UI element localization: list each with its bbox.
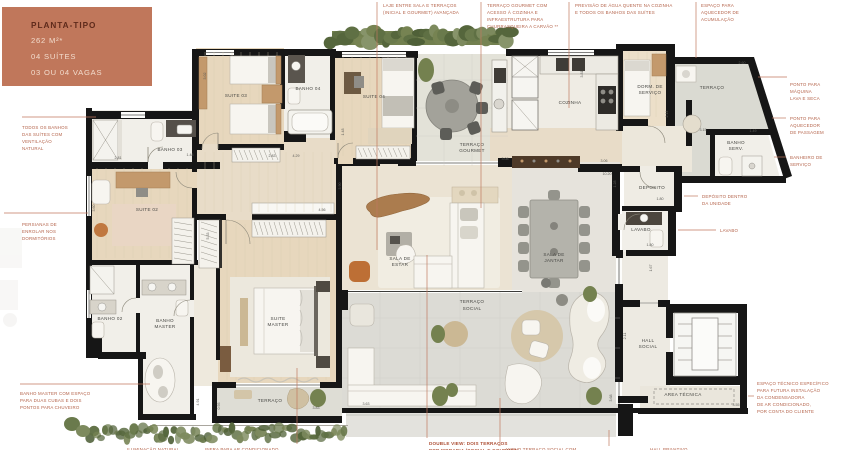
svg-text:3.55: 3.55 [733,403,740,407]
svg-text:JANTAR: JANTAR [544,258,564,263]
svg-text:3.63: 3.63 [363,402,370,406]
svg-text:DE PASSAGEM: DE PASSAGEM [790,130,824,135]
svg-text:VENTILAÇÃO: VENTILAÇÃO [22,139,52,144]
svg-text:1.28: 1.28 [613,181,617,188]
svg-text:PLANTA-TIPO: PLANTA-TIPO [31,21,96,30]
svg-text:ESPAÇO TÉCNICO ESPECÍFICO: ESPAÇO TÉCNICO ESPECÍFICO [757,381,829,386]
svg-text:MASTER: MASTER [155,324,176,329]
svg-text:CHURRASQUEIRA A CARVÃO **: CHURRASQUEIRA A CARVÃO ** [487,24,558,29]
svg-text:ENROLAR NOS: ENROLAR NOS [22,229,56,234]
svg-text:COZINHA: COZINHA [559,100,582,105]
svg-text:PONTOS PARA CHUVEIRO: PONTOS PARA CHUVEIRO [20,405,80,410]
svg-text:LAVA E SECA: LAVA E SECA [790,96,820,101]
svg-text:DE AR CONDICIONADO,: DE AR CONDICIONADO, [757,402,811,407]
svg-text:SUITE 03: SUITE 03 [225,93,247,98]
svg-text:TERRAÇO GOURMET COM: TERRAÇO GOURMET COM [487,3,547,8]
svg-text:3.81: 3.81 [580,71,584,78]
svg-text:AQUECEDOR DE: AQUECEDOR DE [701,10,739,15]
svg-text:BANHO: BANHO [727,140,745,145]
svg-text:SALA DE: SALA DE [543,252,564,257]
svg-text:MÁQUINA: MÁQUINA [790,89,812,94]
svg-text:BANHO 04: BANHO 04 [295,86,320,91]
svg-text:DORM. DE: DORM. DE [637,84,662,89]
svg-text:ACUMULAÇÃO: ACUMULAÇÃO [701,17,734,22]
svg-text:SERV.: SERV. [729,146,744,151]
svg-text:SERVIÇO: SERVIÇO [790,162,811,167]
svg-text:BANHO: BANHO [156,318,174,323]
svg-text:3.60: 3.60 [92,205,96,212]
svg-text:BANHO MASTER COM ESPAÇO: BANHO MASTER COM ESPAÇO [20,391,91,396]
svg-text:SERVIÇO: SERVIÇO [639,90,662,95]
svg-text:2.60: 2.60 [739,61,746,65]
svg-text:PARA FUTURA INSTALAÇÃO: PARA FUTURA INSTALAÇÃO [757,388,821,393]
svg-text:4.56: 4.56 [319,208,326,212]
svg-text:HALL: HALL [642,338,655,343]
svg-text:TERRAÇO: TERRAÇO [700,85,725,90]
svg-text:4.29: 4.29 [293,154,300,158]
svg-text:3.90: 3.90 [338,183,342,190]
svg-text:BANHO 02: BANHO 02 [97,316,122,321]
svg-text:4.91: 4.91 [196,399,200,406]
svg-text:PERSIANAS DE: PERSIANAS DE [22,222,57,227]
svg-text:1.80: 1.80 [647,243,654,247]
svg-text:INFRAESTRUTURA PARA: INFRAESTRUTURA PARA [487,17,543,22]
svg-text:1.48: 1.48 [341,129,345,136]
svg-text:262 M²*: 262 M²* [31,36,63,45]
svg-text:TERRAÇO: TERRAÇO [258,398,283,403]
svg-text:PONTO PARA: PONTO PARA [790,82,820,87]
svg-text:SALA DE: SALA DE [389,256,410,261]
svg-text:DEPÓSITO DENTRO: DEPÓSITO DENTRO [702,194,748,199]
svg-text:DORMITÓRIOS: DORMITÓRIOS [22,236,56,241]
svg-text:2.11: 2.11 [623,333,627,340]
svg-text:MASTER: MASTER [268,322,289,327]
svg-text:3.83: 3.83 [313,406,320,410]
svg-text:DA CONDENSADORA: DA CONDENSADORA [757,395,805,400]
svg-text:2.81: 2.81 [115,156,122,160]
svg-text:3.02: 3.02 [203,73,207,80]
svg-text:DA UNIDADE: DA UNIDADE [702,201,731,206]
svg-text:SOCIAL: SOCIAL [639,344,658,349]
svg-text:2.83: 2.83 [269,154,276,158]
svg-text:03 OU 04 VAGAS: 03 OU 04 VAGAS [31,68,102,77]
svg-text:POR CONTA DO CLIENTE: POR CONTA DO CLIENTE [757,409,814,414]
svg-text:(INICIAL E GOURMET) AVANÇADA: (INICIAL E GOURMET) AVANÇADA [383,10,459,15]
svg-text:0.93: 0.93 [217,403,221,410]
svg-text:ESTAR: ESTAR [392,262,409,267]
svg-text:SUITE: SUITE [270,316,285,321]
svg-text:2.14: 2.14 [665,111,669,118]
svg-text:BANHEIRO DE: BANHEIRO DE [790,155,822,160]
svg-text:ESPAÇO PARA: ESPAÇO PARA [701,3,734,8]
svg-text:DOUBLE VIEW: DOIS TERRAÇOS: DOUBLE VIEW: DOIS TERRAÇOS [429,441,508,446]
svg-text:AREA TÉCNICA: AREA TÉCNICA [664,391,702,397]
svg-text:LAVABO: LAVABO [720,228,739,233]
svg-text:3.15: 3.15 [700,128,707,132]
svg-text:TERRAÇO: TERRAÇO [460,299,485,304]
svg-text:AQUECEDOR: AQUECEDOR [790,123,820,128]
svg-text:1.67: 1.67 [649,265,653,272]
svg-text:1.48: 1.48 [187,153,194,157]
svg-text:LAVABO: LAVABO [631,227,651,232]
svg-text:PARA DUAS CUBAS E DOIS: PARA DUAS CUBAS E DOIS [20,398,82,403]
svg-text:ACESSO À COZINHA E: ACESSO À COZINHA E [487,10,538,15]
svg-text:5.33: 5.33 [206,233,210,240]
svg-text:PONTO PARA: PONTO PARA [790,116,820,121]
svg-text:SUITE 04: SUITE 04 [363,94,385,99]
svg-text:PREVISÃO DE ÁGUA QUENTE NA COZ: PREVISÃO DE ÁGUA QUENTE NA COZINHA [575,3,673,8]
svg-text:SOCIAL: SOCIAL [463,306,482,311]
svg-text:3.06: 3.06 [601,159,608,163]
svg-text:DAS SUÍTES COM: DAS SUÍTES COM [22,132,63,137]
svg-text:3.68: 3.68 [609,395,613,402]
svg-text:04 SUÍTES: 04 SUÍTES [31,52,76,61]
svg-text:NATURAL: NATURAL [22,146,44,151]
svg-text:DEPOSITO: DEPOSITO [639,185,665,190]
svg-text:LAJE ENTRE SALA E TERRAÇOS: LAJE ENTRE SALA E TERRAÇOS [383,3,457,8]
svg-text:3.08: 3.08 [502,157,509,161]
svg-text:10.20: 10.20 [603,172,612,176]
svg-text:BANHO 03: BANHO 03 [157,147,182,152]
svg-text:1.49: 1.49 [750,129,757,133]
svg-text:1.80: 1.80 [657,197,664,201]
svg-text:SUITE 02: SUITE 02 [136,207,158,212]
svg-text:E TODOS OS BANHOS DAS SUÍTES: E TODOS OS BANHOS DAS SUÍTES [575,10,655,15]
svg-text:TODOS OS BANHOS: TODOS OS BANHOS [22,125,68,130]
